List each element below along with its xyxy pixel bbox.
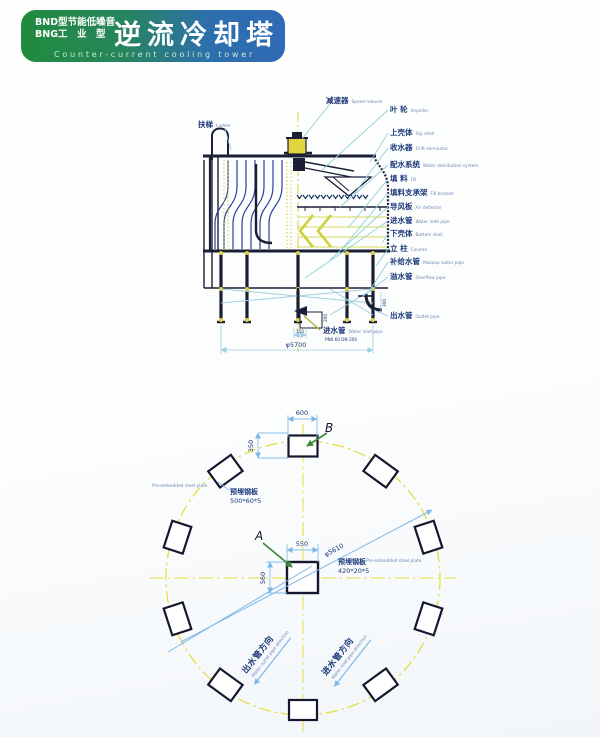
outlet-height-dim: 300	[382, 299, 387, 307]
plate-a-width-text: 550	[296, 540, 308, 548]
label-water-inlet-pipe: 进水管Water inlet pipe	[390, 215, 450, 225]
label-air-deflector: 导风板Air deflector	[390, 201, 442, 211]
label-ladder: 扶梯Ladder	[198, 119, 231, 129]
plate-note-right: 预埋钢板 420*20*5 Pre-embedded steel plate	[338, 557, 422, 575]
foundation-plan-view: φ5610 600 350 550 560	[150, 409, 456, 733]
base-diameter-text: φ5700	[286, 341, 307, 349]
section-flow-lines	[215, 160, 282, 249]
label-overflow-pipe: 溢水管Overflow pipe	[390, 271, 446, 281]
catalog-page: BND型节能低噪音BNG工 业 型 逆流冷却塔 Counter-current …	[0, 0, 600, 737]
inlet-direction-annotation: 进水管方向 Water inlet pipe direction	[318, 626, 371, 686]
label-bottom-inlet: 进水管Water inlet pipe	[323, 325, 383, 335]
embedded-plate	[208, 455, 242, 488]
label-bottom-shell: 下壳体Bottom shell	[390, 228, 443, 238]
embedded-plate	[415, 602, 443, 635]
embedded-plate	[363, 455, 397, 488]
inlet-spec: PN6 60 DN 200	[325, 337, 357, 342]
plate-note-left-cn: 预埋钢板	[230, 487, 259, 496]
label-fill: 填 料Fill	[390, 173, 416, 183]
plate-b-width-text: 600	[296, 409, 308, 417]
plate-note-left-size: 500*60*5	[230, 497, 261, 505]
outlet-direction-annotation: 出水管方向 Water outlet pipe direction	[238, 622, 293, 684]
drawings-canvas: 150 200 300 φ5700	[0, 0, 600, 737]
plate-note-right-size: 420*20*5	[338, 567, 369, 575]
tower-section-view: 150 200 300 φ5700	[198, 95, 478, 354]
label-fill-bracket: 填料支承架Fill bracket	[390, 187, 454, 197]
drift-eliminator	[297, 195, 368, 199]
embedded-plate	[415, 521, 443, 554]
plate-note-right-en: Pre-embedded steel plate	[366, 558, 422, 564]
label-outlet-pipe: 出水管Outlet pipe	[390, 310, 440, 320]
label-drift-eliminator: 收水器Drift eliminator	[390, 142, 448, 152]
bolt-circle-dim-text: φ5610	[323, 542, 345, 559]
inlet-width-dim: 150	[296, 329, 304, 334]
label-top-shell: 上壳体Top shell	[390, 127, 434, 137]
embedded-plate	[164, 521, 192, 554]
label-leaders	[225, 104, 388, 316]
embedded-plate	[208, 668, 242, 701]
label-water-distribution: 配水系统Water distribution system	[390, 159, 478, 169]
plate-note-left: 预埋钢板 500*60*5 Pre-embedded steel plate	[152, 482, 261, 505]
tower-labels: 减速器Speed reducer 扶梯Ladder 叶 轮Impeller 上壳…	[198, 95, 478, 342]
plate-note-right-cn: 预埋钢板	[338, 557, 367, 566]
embedded-plate	[363, 668, 397, 701]
label-column: 立 柱Column	[390, 243, 427, 253]
plate-b-offset-text: 350	[247, 440, 255, 452]
plate-note-left-en: Pre-embedded steel plate	[152, 483, 208, 489]
label-impeller: 叶 轮Impeller	[390, 104, 428, 114]
embedded-plate	[289, 700, 317, 720]
plate-b	[289, 436, 318, 457]
label-makeup-water-pipe: 补给水管Makeup water pipe	[389, 256, 464, 266]
marker-a: A	[254, 529, 263, 543]
label-speed-reducer: 减速器Speed reducer	[326, 95, 383, 105]
inlet-height-dim: 200	[323, 314, 328, 322]
plate-a-height-text: 560	[259, 572, 267, 584]
embedded-plate	[164, 602, 192, 635]
